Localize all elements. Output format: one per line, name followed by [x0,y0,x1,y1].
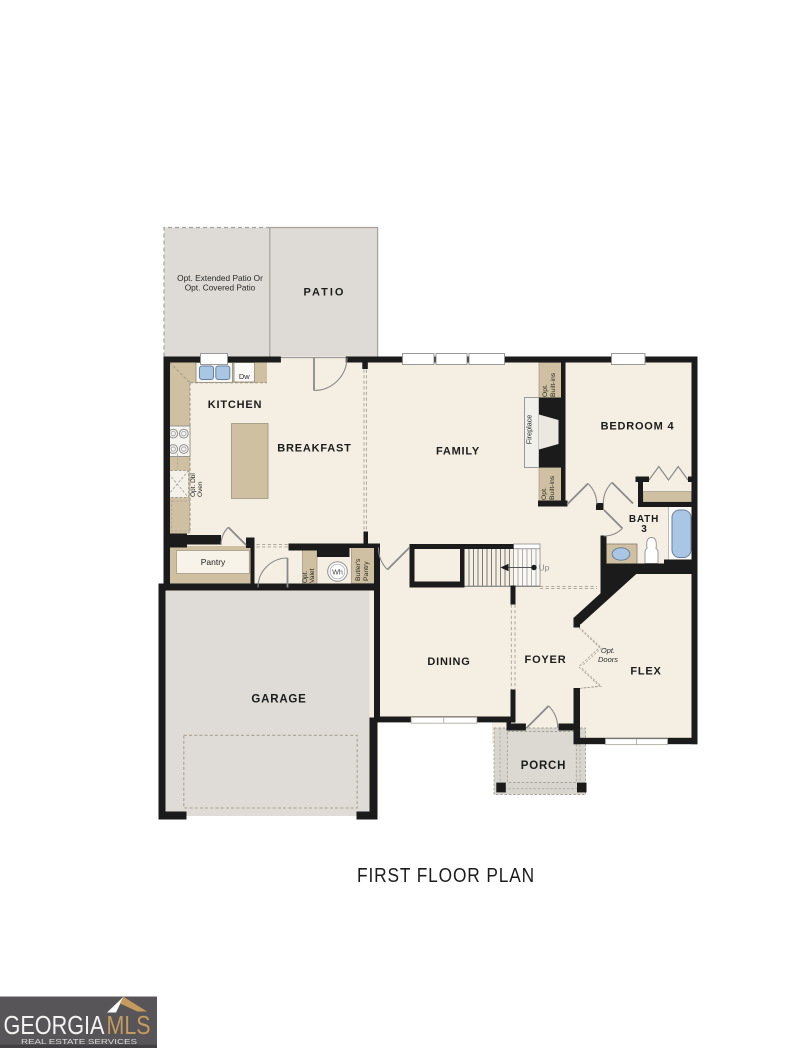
svg-text:Opt. Covered Patio: Opt. Covered Patio [185,283,256,293]
svg-text:Butler's: Butler's [355,558,362,581]
svg-text:FIRST FLOOR PLAN: FIRST FLOOR PLAN [357,865,535,887]
svg-text:MLS: MLS [107,1012,151,1040]
svg-text:GARAGE: GARAGE [251,694,306,706]
svg-text:PORCH: PORCH [521,760,567,772]
svg-text:FOYER: FOYER [525,654,567,666]
svg-text:GEORGIA: GEORGIA [4,1012,105,1040]
svg-text:Opt.: Opt. [542,384,549,397]
svg-text:Dw: Dw [239,372,250,381]
svg-text:Oven: Oven [197,481,204,497]
svg-text:Opt.: Opt. [601,646,615,655]
svg-text:KITCHEN: KITCHEN [208,399,263,411]
svg-text:Pantry: Pantry [363,561,370,581]
svg-text:Up: Up [539,563,550,573]
svg-text:PATIO: PATIO [304,287,346,299]
svg-text:3: 3 [641,524,647,535]
svg-text:BREAKFAST: BREAKFAST [277,443,351,455]
svg-text:Opt.: Opt. [541,487,548,500]
svg-text:Pantry: Pantry [201,557,226,567]
svg-text:FLEX: FLEX [630,666,661,678]
svg-text:Opt. Dbl: Opt. Dbl [190,473,197,497]
svg-text:Built-ins: Built-ins [550,372,557,397]
svg-text:Built-ins: Built-ins [549,475,556,500]
svg-text:Opt. Extended Patio Or: Opt. Extended Patio Or [177,273,263,283]
svg-text:Valet: Valet [309,568,316,583]
svg-text:DINING: DINING [427,656,470,668]
svg-text:REAL ESTATE SERVICES: REAL ESTATE SERVICES [21,1037,137,1046]
svg-text:BEDROOM 4: BEDROOM 4 [601,421,675,433]
svg-text:Doors: Doors [598,655,618,664]
svg-text:FAMILY: FAMILY [436,446,480,458]
svg-text:Opt.: Opt. [302,571,309,583]
svg-text:Fireplace: Fireplace [525,415,534,445]
svg-text:Wh: Wh [332,568,343,577]
